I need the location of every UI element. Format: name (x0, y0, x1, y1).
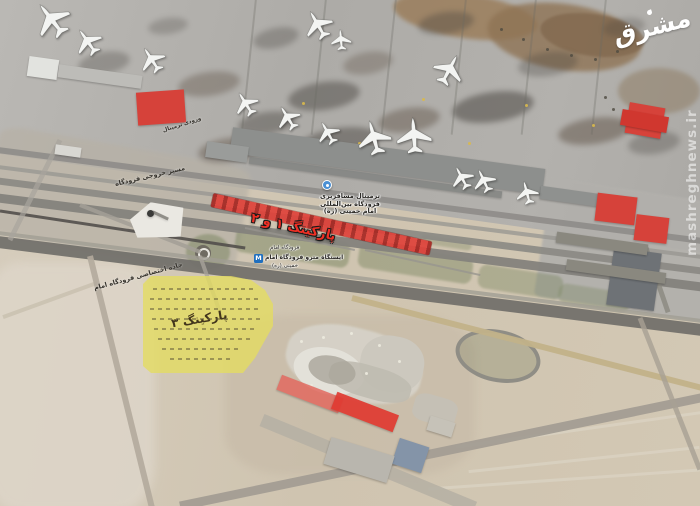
logo-text: مشرق (612, 3, 693, 51)
watermark-text: mashreghnews.ir (684, 8, 700, 256)
satellite-image: پارکینگ ۳ پارکینگ ۱ و ۲ فرودگاه امام M ا… (0, 0, 700, 506)
branding-layer: مشرق mashreghnews.ir (0, 0, 700, 506)
